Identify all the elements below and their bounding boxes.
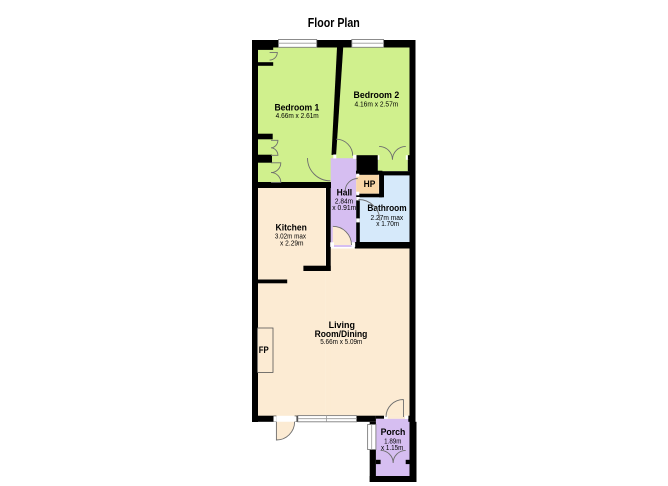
svg-text:Floor Plan: Floor Plan [308,15,360,30]
svg-text:x 0.91m: x 0.91m [332,203,356,212]
svg-text:5.66m x 5.09m: 5.66m x 5.09m [320,337,362,346]
svg-text:Bathroom: Bathroom [367,203,406,213]
svg-text:4.16m x 2.57m: 4.16m x 2.57m [354,99,398,108]
svg-text:x 2.29m: x 2.29m [280,238,304,247]
svg-text:FP: FP [259,345,269,355]
svg-text:HP: HP [364,179,376,189]
svg-text:4.66m x 2.61m: 4.66m x 2.61m [276,111,319,120]
